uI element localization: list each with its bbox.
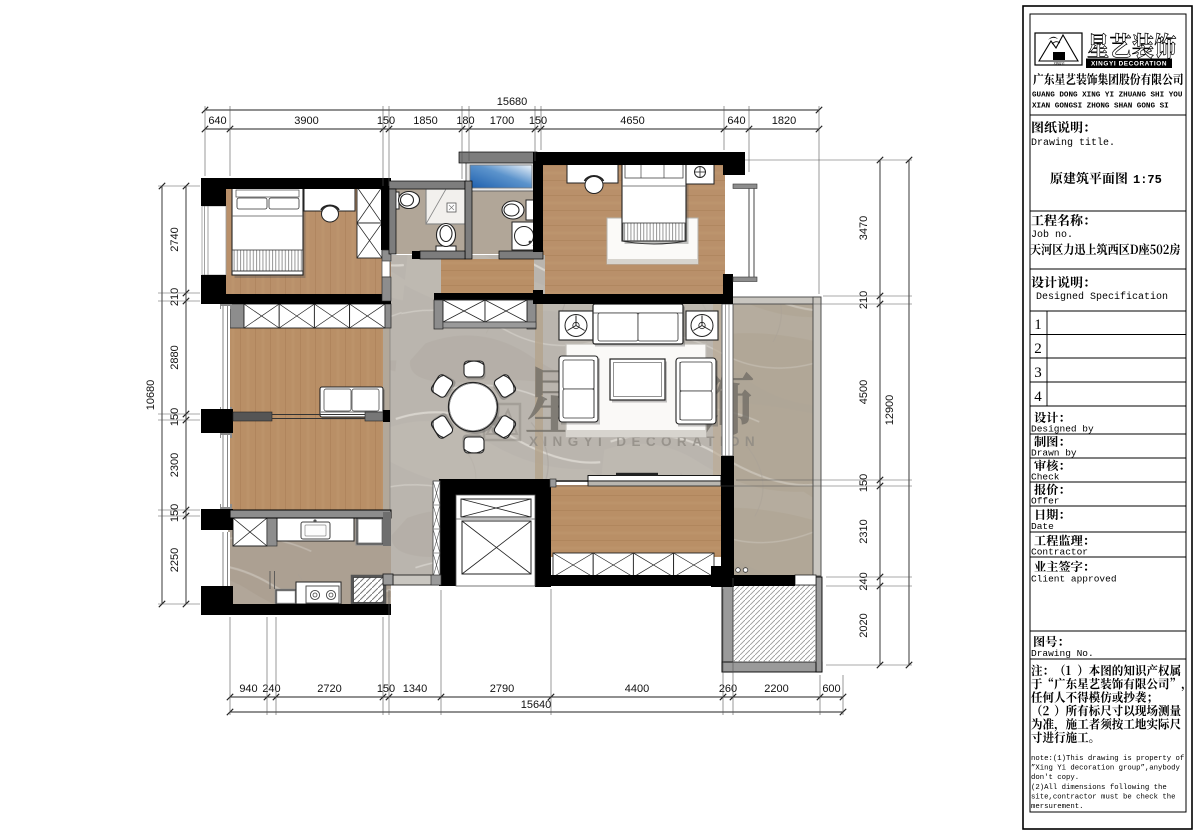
svg-text:Date: Date (1031, 521, 1054, 532)
svg-text:150: 150 (377, 683, 395, 695)
svg-text:2300: 2300 (169, 453, 181, 477)
svg-text:Client approved: Client approved (1031, 574, 1117, 585)
svg-text:4: 4 (1034, 389, 1042, 405)
svg-text:150: 150 (169, 408, 181, 426)
svg-text:2250: 2250 (169, 548, 181, 572)
svg-text:210: 210 (858, 291, 870, 309)
svg-text:4500: 4500 (858, 380, 870, 404)
svg-text:note:(1)This drawing is proper: note:(1)This drawing is property of (1031, 755, 1184, 763)
svg-text:don't copy.: don't copy. (1031, 774, 1079, 782)
svg-text:2200: 2200 (764, 683, 788, 695)
svg-text:Drawing title.: Drawing title. (1031, 137, 1115, 149)
svg-text:640: 640 (727, 115, 745, 127)
svg-text:2720: 2720 (317, 683, 341, 695)
svg-text:3900: 3900 (294, 115, 318, 127)
svg-text:2020: 2020 (858, 613, 870, 637)
svg-text:2790: 2790 (490, 683, 514, 695)
svg-text:150: 150 (169, 504, 181, 522)
svg-text:GUANG DONG XING YI ZHUANG SHI: GUANG DONG XING YI ZHUANG SHI YOU (1032, 92, 1183, 100)
svg-text:XINGYI: XINGYI (1054, 62, 1065, 66)
svg-text:XIAN GONGSI ZHONG SHAN GONG SI: XIAN GONGSI ZHONG SHAN GONG SI (1032, 103, 1169, 111)
svg-text:150: 150 (377, 115, 395, 127)
svg-text:Designed by: Designed by (1031, 424, 1094, 435)
svg-text:Designed Specification: Designed Specification (1036, 291, 1168, 303)
svg-text:260: 260 (719, 683, 737, 695)
svg-text:site,contractor must be check: site,contractor must be check the (1031, 793, 1176, 801)
svg-text:150: 150 (529, 115, 547, 127)
svg-text:1820: 1820 (772, 115, 796, 127)
svg-text:Drawing No.: Drawing No. (1031, 648, 1094, 659)
svg-text:2880: 2880 (169, 345, 181, 369)
svg-text:1700: 1700 (490, 115, 514, 127)
svg-text:3: 3 (1034, 365, 1042, 381)
svg-text:600: 600 (822, 683, 840, 695)
svg-text:2310: 2310 (858, 519, 870, 543)
svg-text:Drawn by: Drawn by (1031, 448, 1077, 459)
svg-text:15640: 15640 (521, 699, 552, 711)
svg-text:1340: 1340 (403, 683, 427, 695)
svg-text:240: 240 (858, 572, 870, 590)
svg-text:(2)All dimensions following th: (2)All dimensions following the (1031, 784, 1167, 792)
svg-text:Offer: Offer (1031, 496, 1060, 507)
svg-text:3470: 3470 (858, 216, 870, 240)
svg-text:Contractor: Contractor (1031, 547, 1088, 558)
svg-text:”Xing Yi decoration group”,any: ”Xing Yi decoration group”,anybody (1031, 765, 1181, 773)
svg-text:XINGYI DECORATION: XINGYI DECORATION (1091, 61, 1167, 68)
svg-text:1850: 1850 (413, 115, 437, 127)
svg-text:12900: 12900 (884, 395, 896, 426)
svg-text:4650: 4650 (620, 115, 644, 127)
svg-text:210: 210 (169, 288, 181, 306)
svg-text:Check: Check (1031, 472, 1060, 483)
svg-text:940: 940 (239, 683, 257, 695)
svg-text:10680: 10680 (145, 380, 157, 411)
svg-text:1: 1 (1034, 317, 1042, 333)
svg-text:150: 150 (858, 474, 870, 492)
svg-text:Job no.: Job no. (1031, 229, 1073, 241)
svg-text:4400: 4400 (625, 683, 649, 695)
svg-text:2740: 2740 (169, 227, 181, 251)
svg-text:240: 240 (262, 683, 280, 695)
svg-text:15680: 15680 (497, 96, 528, 108)
svg-text:1:75: 1:75 (1133, 173, 1162, 187)
svg-text:mersurement.: mersurement. (1031, 803, 1084, 811)
svg-text:2: 2 (1034, 341, 1042, 357)
svg-text:640: 640 (208, 115, 226, 127)
svg-text:180: 180 (456, 115, 474, 127)
